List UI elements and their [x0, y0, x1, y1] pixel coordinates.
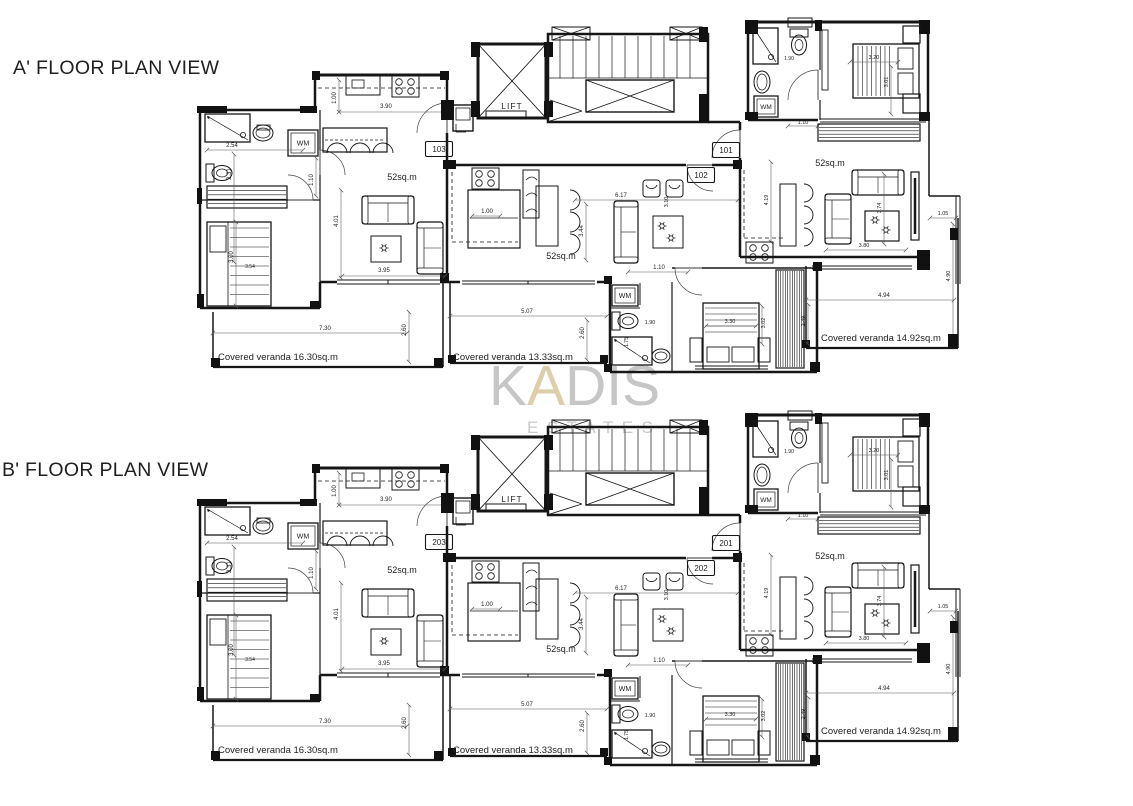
sofa-icon: [362, 589, 414, 617]
dimension-label: 3.80: [859, 243, 870, 249]
wall-pier: [699, 27, 708, 42]
unit-number: 101: [719, 146, 733, 155]
wall-pier: [919, 505, 930, 514]
plant-icon: [379, 637, 388, 645]
toilet-icon: [612, 705, 638, 723]
wm-label: WM: [297, 534, 310, 541]
coffee-table: [865, 211, 899, 241]
dimension-label: 1.00: [332, 92, 338, 104]
shower-icon: [612, 730, 652, 758]
dimension-label: 1.10: [798, 513, 809, 519]
plant-icon: [870, 216, 879, 224]
pillow: [898, 466, 913, 487]
dimension-label: 2.60: [402, 717, 408, 729]
dimension-label: 3.90: [380, 104, 392, 110]
closet: [903, 94, 920, 113]
washing-machine: WM: [754, 489, 778, 510]
area-label: 52sq.m: [815, 158, 845, 168]
wall-pier: [917, 643, 930, 663]
wall-pier: [600, 748, 608, 756]
veranda-label: Covered veranda 16.30sq.m: [218, 352, 338, 363]
dimension-label: 3.74: [877, 596, 883, 607]
wall-pier: [441, 493, 454, 513]
wall-pier: [745, 112, 758, 120]
sofa-icon: [825, 194, 851, 244]
plant-icon: [666, 234, 675, 242]
wall-pier: [197, 499, 227, 506]
washing-machine: WM: [612, 678, 638, 699]
dimension-label: 1.75: [624, 730, 630, 740]
dimension-label: 2.60: [580, 327, 586, 339]
veranda-label: Covered veranda 16.30sq.m: [218, 745, 338, 756]
dimension-label: 4.19: [764, 195, 770, 206]
unit-badge: 103: [426, 142, 453, 157]
dimension-label: 2.31: [227, 168, 233, 180]
wall-pier: [810, 755, 820, 765]
dimension-label: 3.10: [664, 590, 670, 601]
dimension-label: 2.60: [402, 324, 408, 336]
sink-icon: [652, 742, 670, 756]
wm-label: WM: [760, 497, 772, 504]
plan-a-title: A' FLOOR PLAN VIEW: [13, 57, 219, 80]
bed-icon: [207, 615, 271, 699]
area-label: 52sq.m: [546, 644, 576, 654]
toilet-icon: [790, 422, 808, 448]
veranda-label: Covered veranda 13.33sq.m: [453, 352, 573, 363]
wall-pier: [197, 581, 202, 597]
wm-label: WM: [297, 141, 310, 148]
plant-icon: [379, 244, 388, 252]
dimension-label: 3.44: [579, 618, 585, 630]
veranda-left: 7.302.60Covered veranda 16.30sq.m: [211, 676, 443, 760]
dimension-label: 3.01: [884, 470, 890, 481]
veranda-label: Covered veranda 14.92sq.m: [821, 726, 941, 737]
closet: [903, 419, 920, 436]
wall-pier: [434, 358, 443, 367]
coffee-table: [653, 609, 683, 641]
wall-pier: [441, 100, 454, 120]
plant-icon: [657, 222, 666, 230]
dimension-label: 4.90: [946, 271, 952, 282]
plant-icon: [657, 615, 666, 623]
dimension-label: 3.54: [245, 264, 255, 270]
dimension-label: 3.95: [378, 268, 390, 274]
dimension-label: 3.02: [761, 711, 767, 722]
closet: [903, 26, 920, 43]
apartment-left: WM52sq.m2.542.313.003.541.003.901.104.01…: [197, 464, 449, 702]
dimension-label: 1.00: [481, 209, 493, 215]
wall-pier: [699, 94, 709, 122]
kitchen-island: [468, 190, 520, 248]
wall-pier: [440, 464, 449, 473]
bed-icon: [703, 303, 759, 369]
sofa-icon: [417, 615, 443, 667]
veranda-left: 7.302.60Covered veranda 16.30sq.m: [211, 283, 443, 367]
area-label: 52sq.m: [815, 551, 845, 561]
floor-plans-canvas: WM52sq.m2.542.313.003.541.003.901.104.01…: [0, 0, 1133, 806]
wall-pier: [197, 106, 227, 113]
hangers-icon: [526, 570, 537, 605]
stove-icon: [472, 168, 499, 189]
wall-pier: [471, 101, 480, 117]
shower-icon: [205, 507, 250, 535]
stair-lift-core: LIFT203201202: [426, 420, 743, 584]
kitchen-island: [468, 583, 520, 641]
wall-pier: [471, 494, 480, 510]
shower-icon: [205, 114, 250, 142]
dimension-label: 4.19: [764, 588, 770, 599]
wardrobe-hatch: [776, 270, 804, 368]
wall-pier: [197, 687, 204, 701]
plant-icon: [666, 627, 675, 635]
wall-pier: [312, 71, 320, 80]
dimension-label: 3.95: [378, 661, 390, 667]
area-label: 52sq.m: [546, 251, 576, 261]
wall-pier: [300, 106, 317, 113]
pillow: [707, 740, 729, 755]
washing-machine: WM: [288, 523, 318, 549]
wall-pier: [312, 464, 320, 473]
dimension-label: 2.60: [580, 720, 586, 732]
stove-icon: [746, 635, 773, 656]
sofa-icon: [417, 222, 443, 274]
wall-pier: [443, 160, 456, 169]
dimension-label: 3.30: [725, 319, 736, 325]
stove-icon: [392, 469, 419, 490]
dimension-label: 1.00: [332, 485, 338, 497]
dimension-label: 3.74: [877, 203, 883, 214]
wardrobe-hatch: [818, 517, 920, 534]
door-swing-arc: [320, 150, 345, 175]
dimension-label: 1.90: [784, 449, 794, 455]
sofa-icon: [362, 196, 414, 224]
pillow: [898, 441, 913, 462]
unit-badge: 203: [426, 535, 453, 550]
wall-pier: [745, 505, 758, 513]
veranda-label: Covered veranda 14.92sq.m: [821, 333, 941, 344]
dimension-label: 1.10: [653, 658, 665, 664]
lift-shaft: LIFT: [471, 435, 553, 511]
pillow: [732, 347, 754, 362]
dimension-label: 2.54: [226, 143, 238, 149]
dimension-label: 3.44: [579, 225, 585, 237]
wardrobe-hatch: [818, 124, 920, 141]
dimension-label: 3.80: [859, 636, 870, 642]
wall-pier: [300, 499, 317, 506]
dimension-label: 6.17: [615, 586, 627, 592]
wardrobe-hatch: [207, 579, 287, 601]
dimension-label: 3.10: [664, 197, 670, 208]
dimension-label: 2.54: [226, 536, 238, 542]
dimension-label: 1.05: [938, 604, 949, 610]
wall-pier: [471, 42, 480, 57]
armchair-icon: [666, 573, 683, 590]
wall-pier: [310, 694, 320, 702]
armchair-icon: [666, 180, 683, 197]
wall-pier: [950, 621, 958, 633]
bed-icon: [703, 696, 759, 762]
dining-table: [780, 577, 796, 639]
dimension-label: 2.49: [801, 316, 807, 327]
wall-pier: [919, 112, 930, 121]
door-swing-arc: [788, 70, 818, 100]
wall-pier: [471, 435, 480, 450]
wm-label: WM: [619, 686, 632, 693]
apartment-right: 1.90WM3.203.011.101.054.904.1952sq.m3.74…: [740, 18, 960, 346]
sink-icon: [754, 464, 770, 486]
plant-icon: [870, 609, 879, 617]
wall-pier: [699, 487, 709, 515]
dimension-label: 1.10: [309, 567, 315, 579]
wall-pier: [917, 250, 930, 270]
wall-pier: [815, 413, 822, 424]
unit-number: 102: [694, 171, 708, 180]
unit-number: 201: [719, 539, 733, 548]
dimension-label: 5.07: [521, 309, 533, 315]
wall-pier: [197, 188, 202, 204]
wall-pier: [950, 228, 958, 240]
veranda-middle: 5.072.60Covered veranda 13.33sq.m: [448, 676, 609, 756]
dining-chairs: [804, 577, 813, 639]
dimension-label: 1.00: [481, 602, 493, 608]
wardrobe-hatch: [776, 663, 804, 761]
bed-icon: [853, 44, 919, 98]
wall-pier: [197, 294, 204, 308]
unit-badge: 201: [713, 536, 740, 551]
dimension-label: 3.30: [725, 712, 736, 718]
sink-icon: [652, 349, 670, 363]
dimension-label: 3.20: [869, 448, 880, 454]
door-swing-arc: [320, 543, 345, 568]
dimension-label: 3.00: [229, 251, 235, 263]
dimension-label: 1.90: [645, 320, 656, 326]
wall-pier: [948, 334, 958, 347]
dimension-label: 5.07: [521, 702, 533, 708]
washing-machine: WM: [288, 130, 318, 156]
dimension-label: 3.90: [380, 497, 392, 503]
dimension-label: 6.17: [615, 193, 627, 199]
dimension-label: 7.30: [319, 326, 331, 332]
pillow: [898, 48, 913, 69]
wall-pier: [604, 364, 612, 372]
wall-pier: [802, 340, 810, 348]
wall-pier: [600, 355, 608, 363]
floor-plan-sheet: KADIS ESTATES WM52sq.m2.542.313.003.541.…: [0, 0, 1133, 806]
toilet-icon: [790, 29, 808, 55]
floor-plan-b: WM52sq.m2.542.313.003.541.003.901.104.01…: [197, 411, 960, 765]
pillow: [210, 619, 226, 645]
sofa-icon: [852, 563, 904, 588]
bed-icon: [207, 222, 271, 306]
dimension-label: 4.90: [946, 664, 952, 675]
lift-label: LIFT: [501, 494, 522, 504]
dimension-label: 3.54: [245, 657, 255, 663]
wall-pier: [434, 751, 443, 760]
stove-icon: [472, 561, 499, 582]
wall-pier: [699, 420, 708, 435]
wall-pier: [919, 413, 930, 427]
sofa-icon: [852, 170, 904, 195]
armchair-icon: [643, 180, 660, 197]
dimension-label: 1.90: [645, 713, 656, 719]
closet: [903, 487, 920, 506]
pillow: [732, 740, 754, 755]
lift-shaft: LIFT: [471, 42, 553, 118]
wall-pier: [919, 20, 930, 34]
wm-label: WM: [619, 293, 632, 300]
veranda-middle: 5.072.60Covered veranda 13.33sq.m: [448, 283, 609, 363]
stove-icon: [746, 242, 773, 263]
dining-table: [780, 184, 796, 246]
wall-pier: [948, 727, 958, 740]
sofa-icon: [614, 594, 638, 656]
veranda-label: Covered veranda 13.33sq.m: [453, 745, 573, 756]
dimension-label: 4.94: [878, 686, 890, 692]
dimension-label: 3.20: [869, 55, 880, 61]
wall-pier: [440, 71, 449, 80]
wall-pier: [604, 276, 612, 284]
door-swing-arc: [788, 463, 818, 493]
wall-pier: [310, 301, 320, 309]
wardrobe-strip: [822, 423, 828, 483]
toilet-icon: [612, 312, 638, 330]
apartment-left: WM52sq.m2.542.313.003.541.003.901.104.01…: [197, 71, 449, 309]
dimension-label: 4.01: [334, 608, 340, 620]
dimension-label: 3.01: [884, 77, 890, 88]
unit-number: 203: [432, 538, 446, 547]
washing-machine: WM: [754, 96, 778, 117]
lift-label: LIFT: [501, 101, 522, 111]
coffee-table: [653, 216, 683, 248]
dimension-label: 1.10: [309, 174, 315, 186]
stair-lift-core: LIFT103101102: [426, 27, 743, 191]
plant-icon: [881, 226, 890, 234]
staircase: [548, 27, 709, 122]
staircase: [548, 420, 709, 515]
dining-chairs: [804, 184, 813, 246]
floor-plan-a: WM52sq.m2.542.313.003.541.003.901.104.01…: [197, 18, 960, 372]
wall-pier: [815, 20, 822, 31]
dimension-label: 1.90: [784, 56, 794, 62]
bed-icon: [853, 437, 919, 491]
area-label: 52sq.m: [387, 172, 417, 182]
wm-label: WM: [760, 104, 772, 111]
wall-pier: [604, 669, 612, 677]
dimension-label: 1.10: [653, 265, 665, 271]
wall-pier: [604, 757, 612, 765]
sofa-icon: [825, 587, 851, 637]
dimension-label: 2.49: [801, 709, 807, 720]
dimension-label: 3.00: [229, 644, 235, 656]
armchair-icon: [643, 573, 660, 590]
dimension-label: 1.10: [798, 120, 809, 126]
dimension-label: 1.75: [624, 337, 630, 347]
dimension-label: 7.30: [319, 719, 331, 725]
pillow: [210, 226, 226, 252]
unit-number: 103: [432, 145, 446, 154]
wardrobe-strip: [822, 30, 828, 90]
dimension-label: 3.02: [761, 318, 767, 329]
dimension-label: 4.01: [334, 215, 340, 227]
unit-number: 202: [694, 564, 708, 573]
area-label: 52sq.m: [387, 565, 417, 575]
unit-badge: 101: [713, 143, 740, 158]
pillow: [707, 347, 729, 362]
wardrobe-hatch: [207, 186, 287, 208]
pillow: [898, 73, 913, 94]
wall-pier: [802, 733, 810, 741]
wall-pier: [443, 553, 456, 562]
dimension-label: 2.31: [227, 561, 233, 573]
dimension-label: 1.05: [938, 211, 949, 217]
sink-icon: [754, 71, 770, 93]
shower-icon: [612, 337, 652, 365]
stove-icon: [392, 76, 419, 97]
sofa-icon: [614, 201, 638, 263]
plan-b-title: B' FLOOR PLAN VIEW: [2, 459, 208, 482]
dimension-label: 4.94: [878, 293, 890, 299]
wall-pier: [810, 362, 820, 372]
plant-icon: [881, 619, 890, 627]
apartment-right: 1.90WM3.203.011.101.054.904.1952sq.m3.74…: [740, 411, 960, 739]
washing-machine: WM: [612, 285, 638, 306]
coffee-table: [865, 604, 899, 634]
hangers-icon: [526, 177, 537, 212]
